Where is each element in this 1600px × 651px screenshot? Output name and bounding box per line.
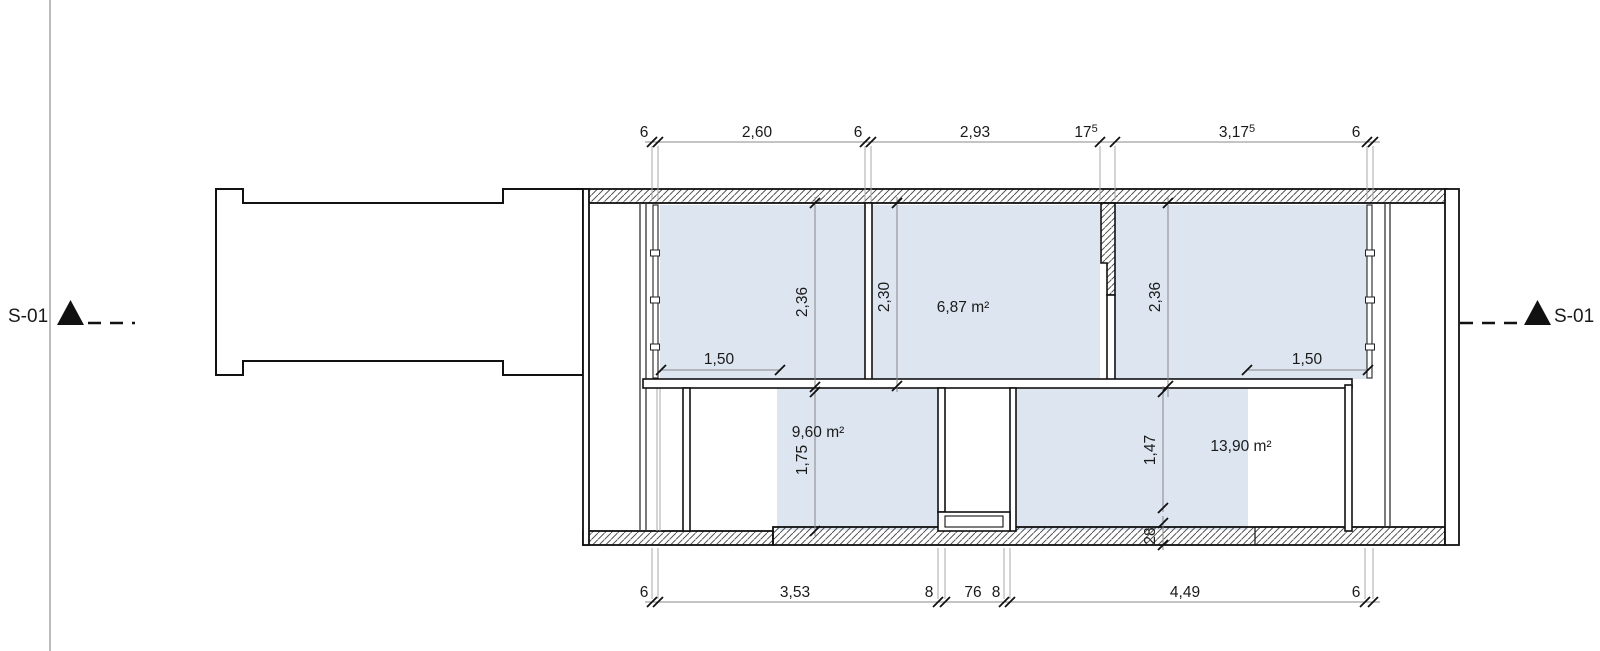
dim-bottom-5: 4,49 [1170, 584, 1200, 601]
window-transom [651, 250, 660, 256]
wall-stub-hatched [1101, 203, 1115, 295]
dim-bottom-0: 6 [640, 584, 649, 601]
window-transom [1366, 250, 1375, 256]
dim-bottom-6: 6 [1352, 584, 1361, 601]
dim-top-4: 175 [1074, 123, 1097, 141]
window-transom [1366, 344, 1375, 350]
lower-left-gray-lines [657, 388, 660, 531]
dim-room-a-depth: 2,36 [794, 287, 811, 317]
dim-value: 3,17 [1219, 124, 1249, 141]
dim-superscript: 5 [1092, 123, 1098, 135]
room-area-label-lower-left: 9,60 m² [792, 424, 845, 441]
left-window [651, 205, 660, 378]
right-window [1366, 205, 1375, 378]
room-upper-left-fill[interactable] [660, 205, 865, 379]
middle-horizontal-wall [643, 379, 1352, 388]
dim-superscript: 5 [1249, 123, 1255, 135]
dim-top-0: 6 [640, 124, 649, 141]
floor-plan-drawing: 6 2,60 6 2,93 175 3,175 6 6 3,53 8 76 8 … [0, 0, 1600, 651]
top-wall [583, 189, 1447, 203]
dim-left-window-width: 1,50 [704, 351, 735, 368]
bottom-wall-left [583, 531, 773, 545]
lower-right-partition [1345, 385, 1352, 531]
dim-top-1: 2,60 [742, 124, 773, 141]
bottom-dimension-texts: 6 3,53 8 76 8 4,49 6 [640, 584, 1361, 601]
dim-bottom-4: 8 [992, 584, 1001, 601]
dim-top-2: 6 [854, 124, 863, 141]
wall-room-a-b [865, 203, 872, 385]
section-marker-right[interactable]: S-01 [1460, 300, 1594, 327]
window-transom [1366, 297, 1375, 303]
window-transom [651, 297, 660, 303]
bottom-wall-right [773, 527, 1445, 545]
wall-stub-lower [1107, 295, 1115, 385]
top-dimension-texts: 6 2,60 6 2,93 175 3,175 6 [640, 123, 1361, 141]
lower-left-partition [683, 388, 690, 531]
window-transom [651, 344, 660, 350]
bottom-witness-lines [652, 548, 1373, 599]
dim-lower-right-height: 1,47 [1142, 435, 1159, 465]
section-arrow-right-icon [1524, 300, 1551, 325]
door-jamb-right [1010, 388, 1016, 531]
dim-room-c-depth: 2,36 [1147, 282, 1164, 312]
section-label-left: S-01 [8, 306, 48, 327]
dim-bottom-wall-thickness: 28 [1142, 527, 1159, 544]
dim-top-5: 3,175 [1219, 123, 1255, 141]
section-label-right: S-01 [1554, 306, 1594, 327]
door-jamb-left [938, 388, 945, 512]
section-arrow-left-icon [57, 300, 84, 325]
dim-bottom-2: 8 [925, 584, 934, 601]
left-outer-wall [583, 189, 589, 545]
floor-plan-sheet: 6 2,60 6 2,93 175 3,175 6 6 3,53 8 76 8 … [0, 0, 1600, 651]
room-upper-middle-fill[interactable] [872, 205, 1100, 380]
room-lower-right-fill[interactable] [1016, 388, 1248, 530]
dim-lower-left-height: 1,75 [794, 445, 811, 475]
dim-room-b-depth: 2,30 [876, 282, 893, 313]
corridor-outline [216, 189, 583, 375]
dim-top-6: 6 [1352, 124, 1361, 141]
section-marker-left[interactable]: S-01 [8, 300, 135, 327]
room-area-label-lower-right: 13,90 m² [1210, 438, 1271, 455]
dim-right-window-width: 1,50 [1292, 351, 1323, 368]
dim-top-3: 2,93 [960, 124, 990, 141]
dim-bottom-1: 3,53 [780, 584, 810, 601]
right-outer-wall [1445, 189, 1459, 545]
dim-value: 17 [1074, 124, 1091, 141]
door-threshold [938, 512, 1010, 531]
dim-bottom-3: 76 [964, 584, 981, 601]
room-area-label-upper-middle: 6,87 m² [937, 299, 990, 316]
